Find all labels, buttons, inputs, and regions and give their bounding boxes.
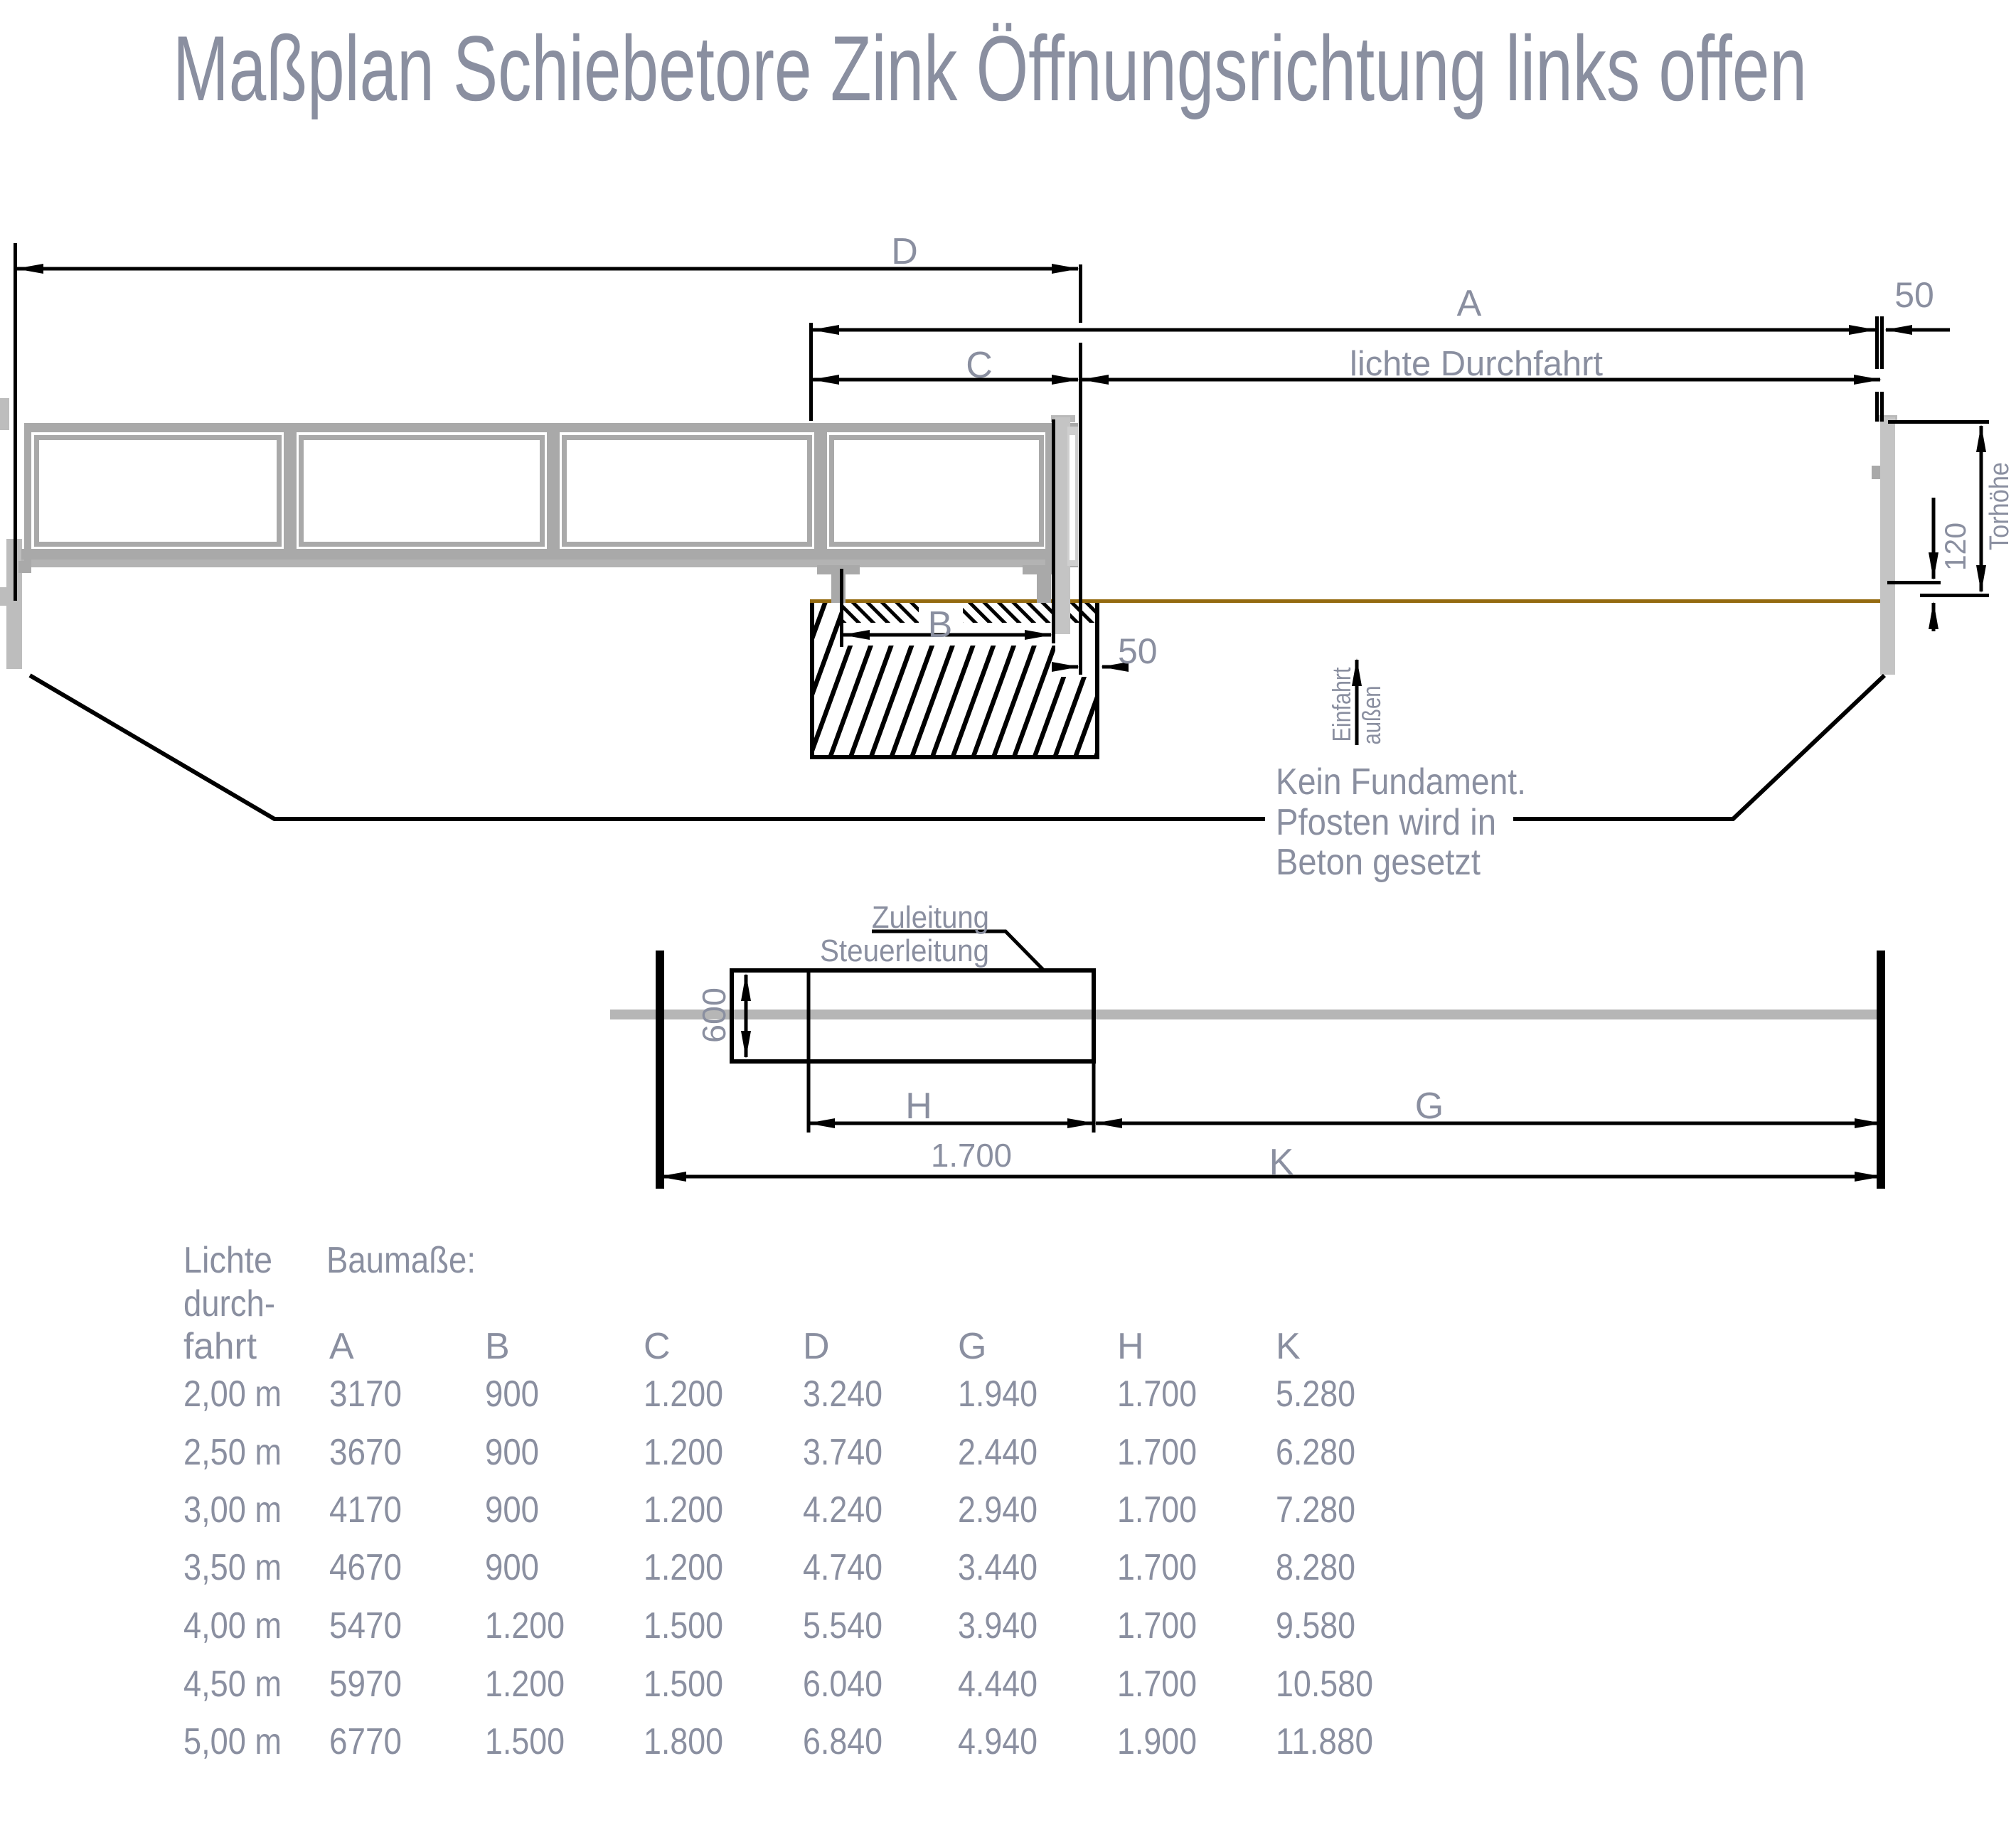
svg-text:G: G (1415, 1086, 1444, 1127)
svg-text:1.200: 1.200 (485, 1664, 565, 1705)
svg-text:Pfosten wird in: Pfosten wird in (1276, 802, 1496, 843)
svg-text:9.580: 9.580 (1276, 1605, 1355, 1647)
svg-text:900: 900 (485, 1432, 539, 1473)
svg-text:50: 50 (1118, 631, 1158, 671)
svg-text:Zuleitung: Zuleitung (872, 900, 989, 935)
svg-text:1.700: 1.700 (1117, 1605, 1197, 1647)
svg-text:fahrt: fahrt (183, 1326, 257, 1367)
svg-text:Kein Fundament.: Kein Fundament. (1276, 761, 1526, 803)
svg-text:2.940: 2.940 (958, 1489, 1038, 1531)
svg-text:H: H (905, 1086, 932, 1127)
svg-text:10.580: 10.580 (1276, 1664, 1373, 1705)
svg-text:1.900: 1.900 (1117, 1721, 1197, 1762)
svg-text:6.040: 6.040 (803, 1664, 882, 1705)
svg-text:4170: 4170 (329, 1489, 402, 1531)
svg-text:K: K (1276, 1326, 1301, 1367)
svg-text:Beton gesetzt: Beton gesetzt (1276, 842, 1481, 883)
svg-text:1.700: 1.700 (1117, 1664, 1197, 1705)
svg-text:1.200: 1.200 (644, 1489, 723, 1531)
svg-text:3170: 3170 (329, 1374, 402, 1415)
svg-text:außen: außen (1357, 686, 1386, 745)
svg-text:1.700: 1.700 (1117, 1489, 1197, 1531)
svg-text:3,00 m: 3,00 m (183, 1489, 282, 1531)
svg-text:1.200: 1.200 (644, 1432, 723, 1473)
svg-text:3670: 3670 (329, 1432, 402, 1473)
svg-text:3,50 m: 3,50 m (183, 1547, 282, 1588)
svg-text:lichte Durchfahrt: lichte Durchfahrt (1350, 345, 1603, 383)
svg-text:120: 120 (1938, 523, 1972, 571)
svg-text:3.940: 3.940 (958, 1605, 1038, 1647)
svg-text:Torhöhe: Torhöhe (1985, 462, 2015, 550)
svg-text:1.500: 1.500 (644, 1664, 723, 1705)
svg-text:5970: 5970 (329, 1664, 402, 1705)
svg-text:Lichte: Lichte (183, 1240, 272, 1281)
svg-text:5470: 5470 (329, 1605, 402, 1647)
svg-text:1.500: 1.500 (644, 1605, 723, 1647)
svg-text:7.280: 7.280 (1276, 1489, 1355, 1531)
svg-text:Baumaße:: Baumaße: (326, 1240, 476, 1281)
svg-text:2,00 m: 2,00 m (183, 1374, 282, 1415)
svg-text:3.740: 3.740 (803, 1432, 882, 1473)
svg-text:2.440: 2.440 (958, 1432, 1038, 1473)
svg-text:C: C (644, 1326, 671, 1367)
svg-text:6.840: 6.840 (803, 1721, 882, 1762)
svg-text:1.700: 1.700 (931, 1137, 1012, 1174)
svg-text:8.280: 8.280 (1276, 1547, 1355, 1588)
svg-text:1.200: 1.200 (644, 1374, 723, 1415)
svg-text:6770: 6770 (329, 1721, 402, 1762)
svg-text:durch-: durch- (183, 1283, 275, 1324)
svg-text:3.440: 3.440 (958, 1547, 1038, 1588)
svg-text:11.880: 11.880 (1276, 1721, 1373, 1762)
svg-text:4.940: 4.940 (958, 1721, 1038, 1762)
svg-text:H: H (1117, 1326, 1144, 1367)
svg-text:Einfahrt: Einfahrt (1327, 668, 1356, 742)
svg-text:5.280: 5.280 (1276, 1374, 1355, 1415)
svg-text:K: K (1269, 1142, 1294, 1183)
svg-text:1.500: 1.500 (485, 1721, 565, 1762)
svg-text:D: D (803, 1326, 830, 1367)
svg-text:1.200: 1.200 (644, 1547, 723, 1588)
svg-text:B: B (485, 1326, 510, 1367)
svg-text:C: C (966, 345, 993, 386)
svg-text:Maßplan Schiebetore Zink Öffnu: Maßplan Schiebetore Zink Öffnungsrichtun… (173, 16, 1807, 120)
svg-text:1.700: 1.700 (1117, 1547, 1197, 1588)
svg-text:50: 50 (1894, 275, 1934, 315)
svg-text:4,00 m: 4,00 m (183, 1605, 282, 1647)
svg-text:1.800: 1.800 (644, 1721, 723, 1762)
svg-text:5.540: 5.540 (803, 1605, 882, 1647)
svg-text:1.700: 1.700 (1117, 1374, 1197, 1415)
svg-text:900: 900 (485, 1489, 539, 1531)
svg-text:4.440: 4.440 (958, 1664, 1038, 1705)
svg-text:3.240: 3.240 (803, 1374, 882, 1415)
svg-text:G: G (958, 1326, 986, 1367)
svg-text:2,50 m: 2,50 m (183, 1432, 282, 1473)
svg-text:900: 900 (485, 1547, 539, 1588)
svg-text:600: 600 (695, 987, 732, 1043)
svg-text:4670: 4670 (329, 1547, 402, 1588)
svg-text:B: B (928, 604, 953, 646)
svg-text:A: A (1457, 283, 1482, 324)
svg-text:1.940: 1.940 (958, 1374, 1038, 1415)
svg-text:5,00 m: 5,00 m (183, 1721, 282, 1762)
svg-text:900: 900 (485, 1374, 539, 1415)
svg-text:4,50 m: 4,50 m (183, 1664, 282, 1705)
svg-text:Steuerleitung: Steuerleitung (820, 933, 989, 968)
svg-text:1.700: 1.700 (1117, 1432, 1197, 1473)
svg-text:4.740: 4.740 (803, 1547, 882, 1588)
svg-text:4.240: 4.240 (803, 1489, 882, 1531)
svg-text:A: A (329, 1326, 354, 1367)
svg-text:1.200: 1.200 (485, 1605, 565, 1647)
svg-text:D: D (891, 231, 918, 272)
svg-text:6.280: 6.280 (1276, 1432, 1355, 1473)
